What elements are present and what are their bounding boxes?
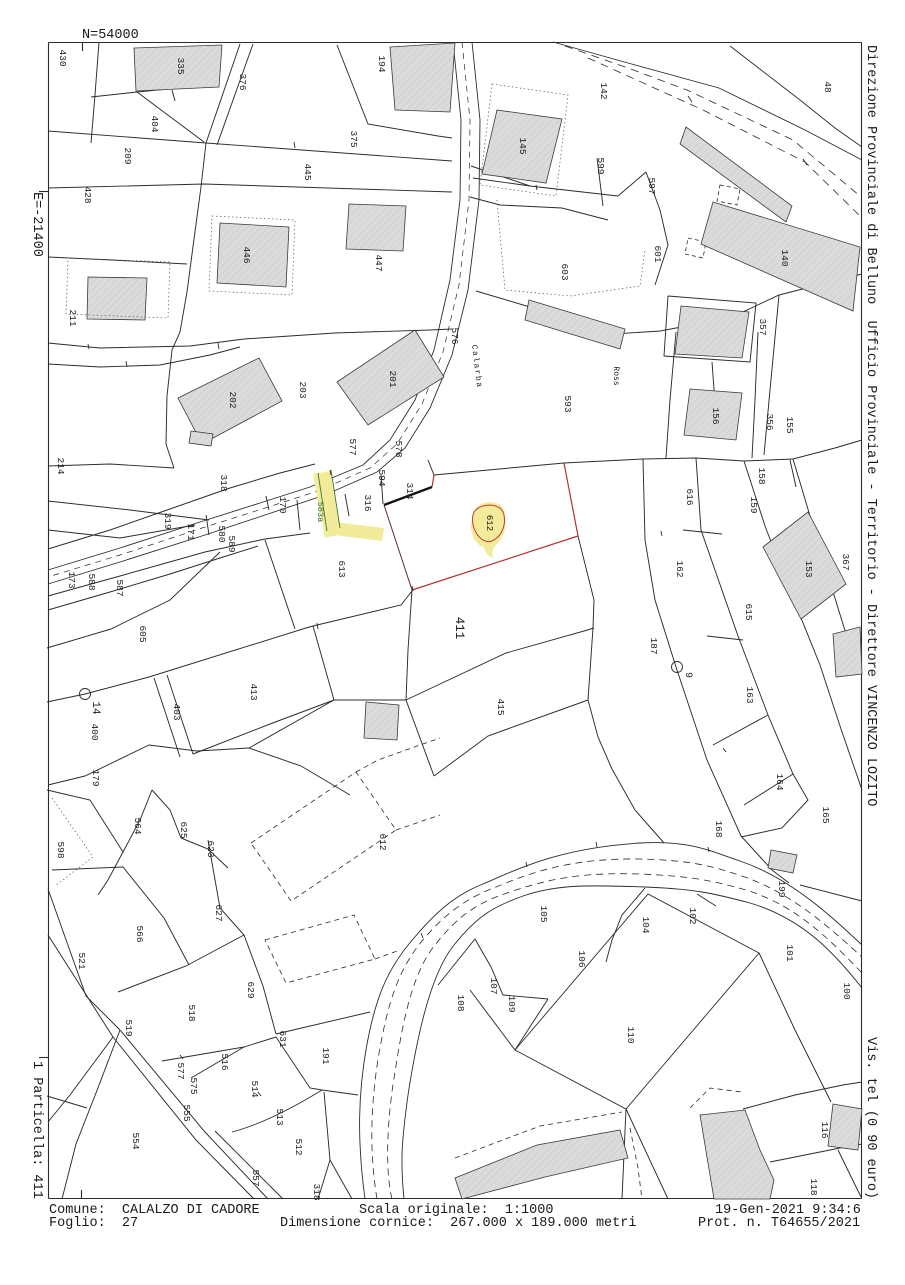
svg-text:140: 140 <box>779 249 790 266</box>
svg-text:403: 403 <box>171 703 182 720</box>
svg-text:577: 577 <box>175 1062 186 1079</box>
svg-text:376: 376 <box>237 73 248 90</box>
svg-text:48: 48 <box>822 81 833 93</box>
svg-text:145: 145 <box>517 137 528 154</box>
svg-text:430: 430 <box>57 49 68 66</box>
svg-text:557: 557 <box>250 1169 261 1186</box>
svg-text:1 Particella: 411: 1 Particella: 411 <box>29 1061 44 1199</box>
svg-text:564: 564 <box>132 817 143 834</box>
svg-text:446: 446 <box>241 246 252 263</box>
svg-text:108: 108 <box>455 994 466 1011</box>
svg-text:159: 159 <box>748 496 759 513</box>
svg-text:Prot. n. T64655/2021: Prot. n. T64655/2021 <box>698 1216 860 1231</box>
svg-text:163: 163 <box>744 686 755 703</box>
svg-text:162: 162 <box>674 560 685 577</box>
svg-text:400: 400 <box>89 723 100 740</box>
svg-text:14: 14 <box>89 701 101 715</box>
svg-text:605: 605 <box>137 625 148 642</box>
svg-text:612: 612 <box>484 515 494 531</box>
svg-text:631: 631 <box>277 1030 288 1047</box>
svg-text:575: 575 <box>188 1077 199 1094</box>
svg-text:314: 314 <box>404 482 415 499</box>
svg-text:593: 593 <box>562 395 573 412</box>
svg-text:512: 512 <box>293 1138 304 1155</box>
svg-text:554: 554 <box>130 1132 141 1149</box>
svg-text:319: 319 <box>162 512 173 529</box>
svg-text:578: 578 <box>393 440 404 457</box>
svg-text:583a: 583a <box>315 502 325 522</box>
svg-text:521: 521 <box>76 952 87 969</box>
svg-text:9: 9 <box>682 672 693 678</box>
svg-text:107: 107 <box>488 977 499 994</box>
svg-text:577: 577 <box>347 438 358 455</box>
svg-text:Dimensione cornice: 267.000 x: Dimensione cornice: 267.000 x 189.000 me… <box>280 1216 636 1231</box>
svg-text:209: 209 <box>122 147 133 164</box>
svg-text:118: 118 <box>808 1178 819 1195</box>
svg-text:191: 191 <box>320 1047 331 1064</box>
svg-text:318: 318 <box>311 1183 322 1200</box>
svg-text:580: 580 <box>216 525 227 542</box>
svg-text:555: 555 <box>181 1104 192 1121</box>
svg-text:110: 110 <box>625 1026 636 1043</box>
svg-text:Foglio: 27: Foglio: 27 <box>49 1216 138 1231</box>
svg-text:598: 598 <box>55 841 66 858</box>
svg-text:357: 357 <box>757 318 768 335</box>
svg-text:Vis. tel (0 90 euro): Vis. tel (0 90 euro) <box>863 1037 878 1199</box>
svg-text:367: 367 <box>840 553 851 570</box>
svg-text:102: 102 <box>687 907 698 924</box>
svg-text:404: 404 <box>149 115 160 132</box>
svg-text:Direzione Provinciale di Bellu: Direzione Provinciale di Belluno Ufficio… <box>863 45 878 807</box>
svg-text:164: 164 <box>774 773 785 790</box>
svg-text:202: 202 <box>227 391 238 408</box>
svg-text:101: 101 <box>784 944 795 961</box>
svg-text:155: 155 <box>784 416 795 433</box>
svg-text:153: 153 <box>803 560 814 577</box>
svg-text:623: 623 <box>205 840 216 857</box>
svg-text:615: 615 <box>743 603 754 620</box>
svg-text:104: 104 <box>640 916 651 933</box>
svg-text:597: 597 <box>646 177 657 194</box>
svg-text:194: 194 <box>376 55 387 72</box>
svg-text:318: 318 <box>218 474 229 491</box>
svg-text:516: 516 <box>219 1053 230 1070</box>
svg-text:203: 203 <box>297 381 308 398</box>
svg-text:587: 587 <box>114 579 125 596</box>
svg-text:513: 513 <box>274 1108 285 1125</box>
svg-text:627: 627 <box>213 904 224 921</box>
svg-text:566: 566 <box>134 925 145 942</box>
svg-text:199: 199 <box>776 880 787 897</box>
svg-text:612: 612 <box>377 833 388 850</box>
svg-text:211: 211 <box>67 309 78 326</box>
svg-text:214: 214 <box>55 457 66 474</box>
svg-text:165: 165 <box>820 806 831 823</box>
svg-text:170: 170 <box>277 496 288 513</box>
svg-text:589: 589 <box>226 535 237 552</box>
svg-text:601: 601 <box>652 245 663 262</box>
svg-text:173: 173 <box>66 571 77 588</box>
svg-text:616: 616 <box>684 488 695 505</box>
svg-text:E=-21400: E=-21400 <box>29 192 44 257</box>
svg-text:576: 576 <box>449 327 460 344</box>
svg-text:106: 106 <box>576 950 587 967</box>
svg-text:156: 156 <box>710 407 721 424</box>
svg-text:613: 613 <box>336 560 347 577</box>
svg-text:599: 599 <box>595 157 606 174</box>
svg-text:375: 375 <box>348 130 359 147</box>
svg-text:316: 316 <box>362 494 373 511</box>
svg-text:171: 171 <box>185 523 196 540</box>
svg-text:629: 629 <box>245 981 256 998</box>
svg-text:603: 603 <box>559 263 570 280</box>
svg-text:158: 158 <box>756 467 767 484</box>
svg-text:445: 445 <box>302 163 313 180</box>
svg-text:625: 625 <box>178 821 189 838</box>
svg-text:594: 594 <box>376 469 387 486</box>
svg-text:519: 519 <box>123 1019 134 1036</box>
svg-text:428: 428 <box>82 186 93 203</box>
svg-text:415: 415 <box>495 698 506 715</box>
svg-text:514: 514 <box>249 1080 260 1097</box>
svg-text:168: 168 <box>713 820 724 837</box>
svg-text:201: 201 <box>387 370 398 387</box>
svg-text:100: 100 <box>841 982 852 999</box>
svg-text:356: 356 <box>764 413 775 430</box>
svg-text:413: 413 <box>248 683 259 700</box>
svg-text:105: 105 <box>538 905 549 922</box>
svg-text:335: 335 <box>175 57 186 74</box>
svg-text:411: 411 <box>452 617 466 640</box>
svg-text:Ross: Ross <box>611 366 620 385</box>
svg-text:518: 518 <box>186 1004 197 1021</box>
svg-text:447: 447 <box>373 254 384 271</box>
svg-text:187: 187 <box>648 637 659 654</box>
svg-text:179: 179 <box>90 769 101 786</box>
svg-text:N=54000: N=54000 <box>82 28 139 43</box>
svg-text:588: 588 <box>86 573 97 590</box>
svg-text:142: 142 <box>598 82 609 99</box>
svg-text:116: 116 <box>819 1121 830 1138</box>
svg-text:109: 109 <box>506 995 517 1012</box>
